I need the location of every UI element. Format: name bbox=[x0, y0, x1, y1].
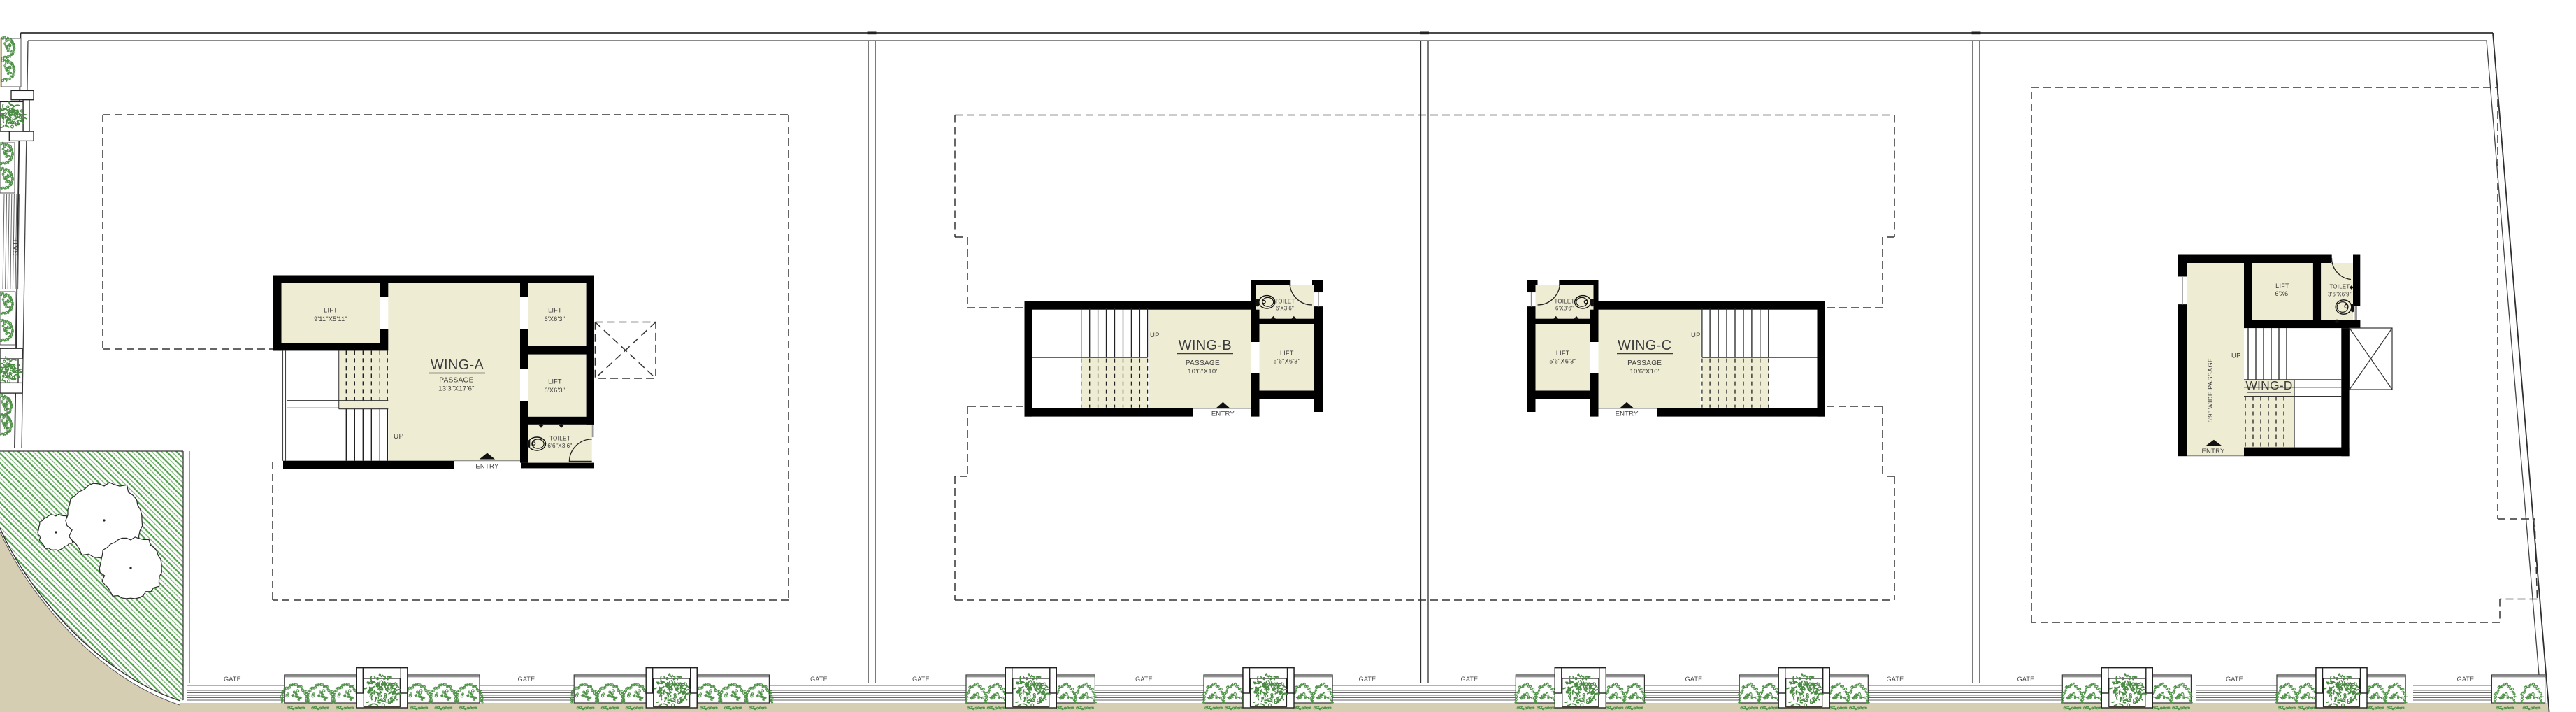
svg-text:6'X6'3": 6'X6'3" bbox=[545, 387, 566, 394]
svg-text:GATE: GATE bbox=[518, 676, 535, 683]
svg-text:TOILET: TOILET bbox=[2330, 284, 2350, 290]
svg-text:GATE: GATE bbox=[12, 236, 20, 256]
svg-text:GATE: GATE bbox=[2226, 676, 2243, 683]
svg-text:GATE: GATE bbox=[224, 676, 241, 683]
svg-text:WING-D: WING-D bbox=[2245, 378, 2292, 392]
svg-text:ENTRY: ENTRY bbox=[2201, 448, 2224, 455]
svg-text:GATE: GATE bbox=[1359, 676, 1376, 683]
svg-text:6'X3'6": 6'X3'6" bbox=[1555, 306, 1574, 312]
svg-text:GATE: GATE bbox=[1461, 676, 1478, 683]
svg-text:ENTRY: ENTRY bbox=[1616, 411, 1639, 418]
svg-text:6'X6'3": 6'X6'3" bbox=[545, 315, 566, 322]
svg-text:GATE: GATE bbox=[2017, 676, 2035, 683]
svg-text:LIFT: LIFT bbox=[324, 307, 338, 314]
svg-text:UP: UP bbox=[2231, 353, 2241, 360]
svg-text:5'9" WIDE PASSAGE: 5'9" WIDE PASSAGE bbox=[2207, 358, 2214, 423]
svg-text:UP: UP bbox=[394, 433, 404, 441]
svg-text:6'X3'6": 6'X3'6" bbox=[1276, 306, 1294, 312]
svg-text:PASSAGE: PASSAGE bbox=[439, 377, 473, 385]
svg-text:6'X6': 6'X6' bbox=[2275, 290, 2290, 297]
svg-text:9'11"X5'11": 9'11"X5'11" bbox=[314, 315, 347, 322]
svg-text:LIFT: LIFT bbox=[1556, 350, 1570, 357]
svg-text:ENTRY: ENTRY bbox=[475, 463, 498, 471]
svg-text:ENTRY: ENTRY bbox=[1211, 411, 1235, 418]
svg-text:UP: UP bbox=[1150, 332, 1160, 339]
svg-text:TOILET: TOILET bbox=[1555, 299, 1575, 305]
svg-text:GATE: GATE bbox=[2457, 676, 2475, 683]
svg-text:GATE: GATE bbox=[912, 676, 930, 683]
svg-text:GATE: GATE bbox=[1887, 676, 1904, 683]
svg-text:PASSAGE: PASSAGE bbox=[1627, 359, 1662, 367]
svg-text:GATE: GATE bbox=[1135, 676, 1153, 683]
svg-text:LIFT: LIFT bbox=[548, 378, 562, 385]
svg-text:GATE: GATE bbox=[810, 676, 828, 683]
svg-text:UP: UP bbox=[1691, 332, 1701, 339]
svg-text:WING-C: WING-C bbox=[1618, 338, 1671, 353]
svg-text:LIFT: LIFT bbox=[2275, 283, 2289, 290]
svg-text:10'6"X10': 10'6"X10' bbox=[1188, 368, 1217, 376]
svg-text:TOILET: TOILET bbox=[1275, 299, 1295, 305]
svg-text:13'3"X17'6": 13'3"X17'6" bbox=[438, 385, 475, 393]
svg-text:TOILET: TOILET bbox=[549, 436, 570, 442]
svg-text:WING-A: WING-A bbox=[431, 357, 484, 373]
svg-text:6'6"X3'6": 6'6"X3'6" bbox=[547, 443, 572, 449]
svg-text:LIFT: LIFT bbox=[1280, 350, 1294, 357]
svg-text:3'6"X6'9": 3'6"X6'9" bbox=[2328, 292, 2352, 298]
svg-text:10'6"X10': 10'6"X10' bbox=[1629, 368, 1659, 376]
svg-text:5'6"X6'3": 5'6"X6'3" bbox=[1274, 358, 1301, 365]
svg-text:WING-B: WING-B bbox=[1179, 338, 1232, 353]
svg-text:GATE: GATE bbox=[1685, 676, 1703, 683]
svg-text:PASSAGE: PASSAGE bbox=[1186, 359, 1220, 367]
svg-text:LIFT: LIFT bbox=[548, 307, 562, 314]
svg-text:5'6"X6'3": 5'6"X6'3" bbox=[1549, 358, 1576, 365]
